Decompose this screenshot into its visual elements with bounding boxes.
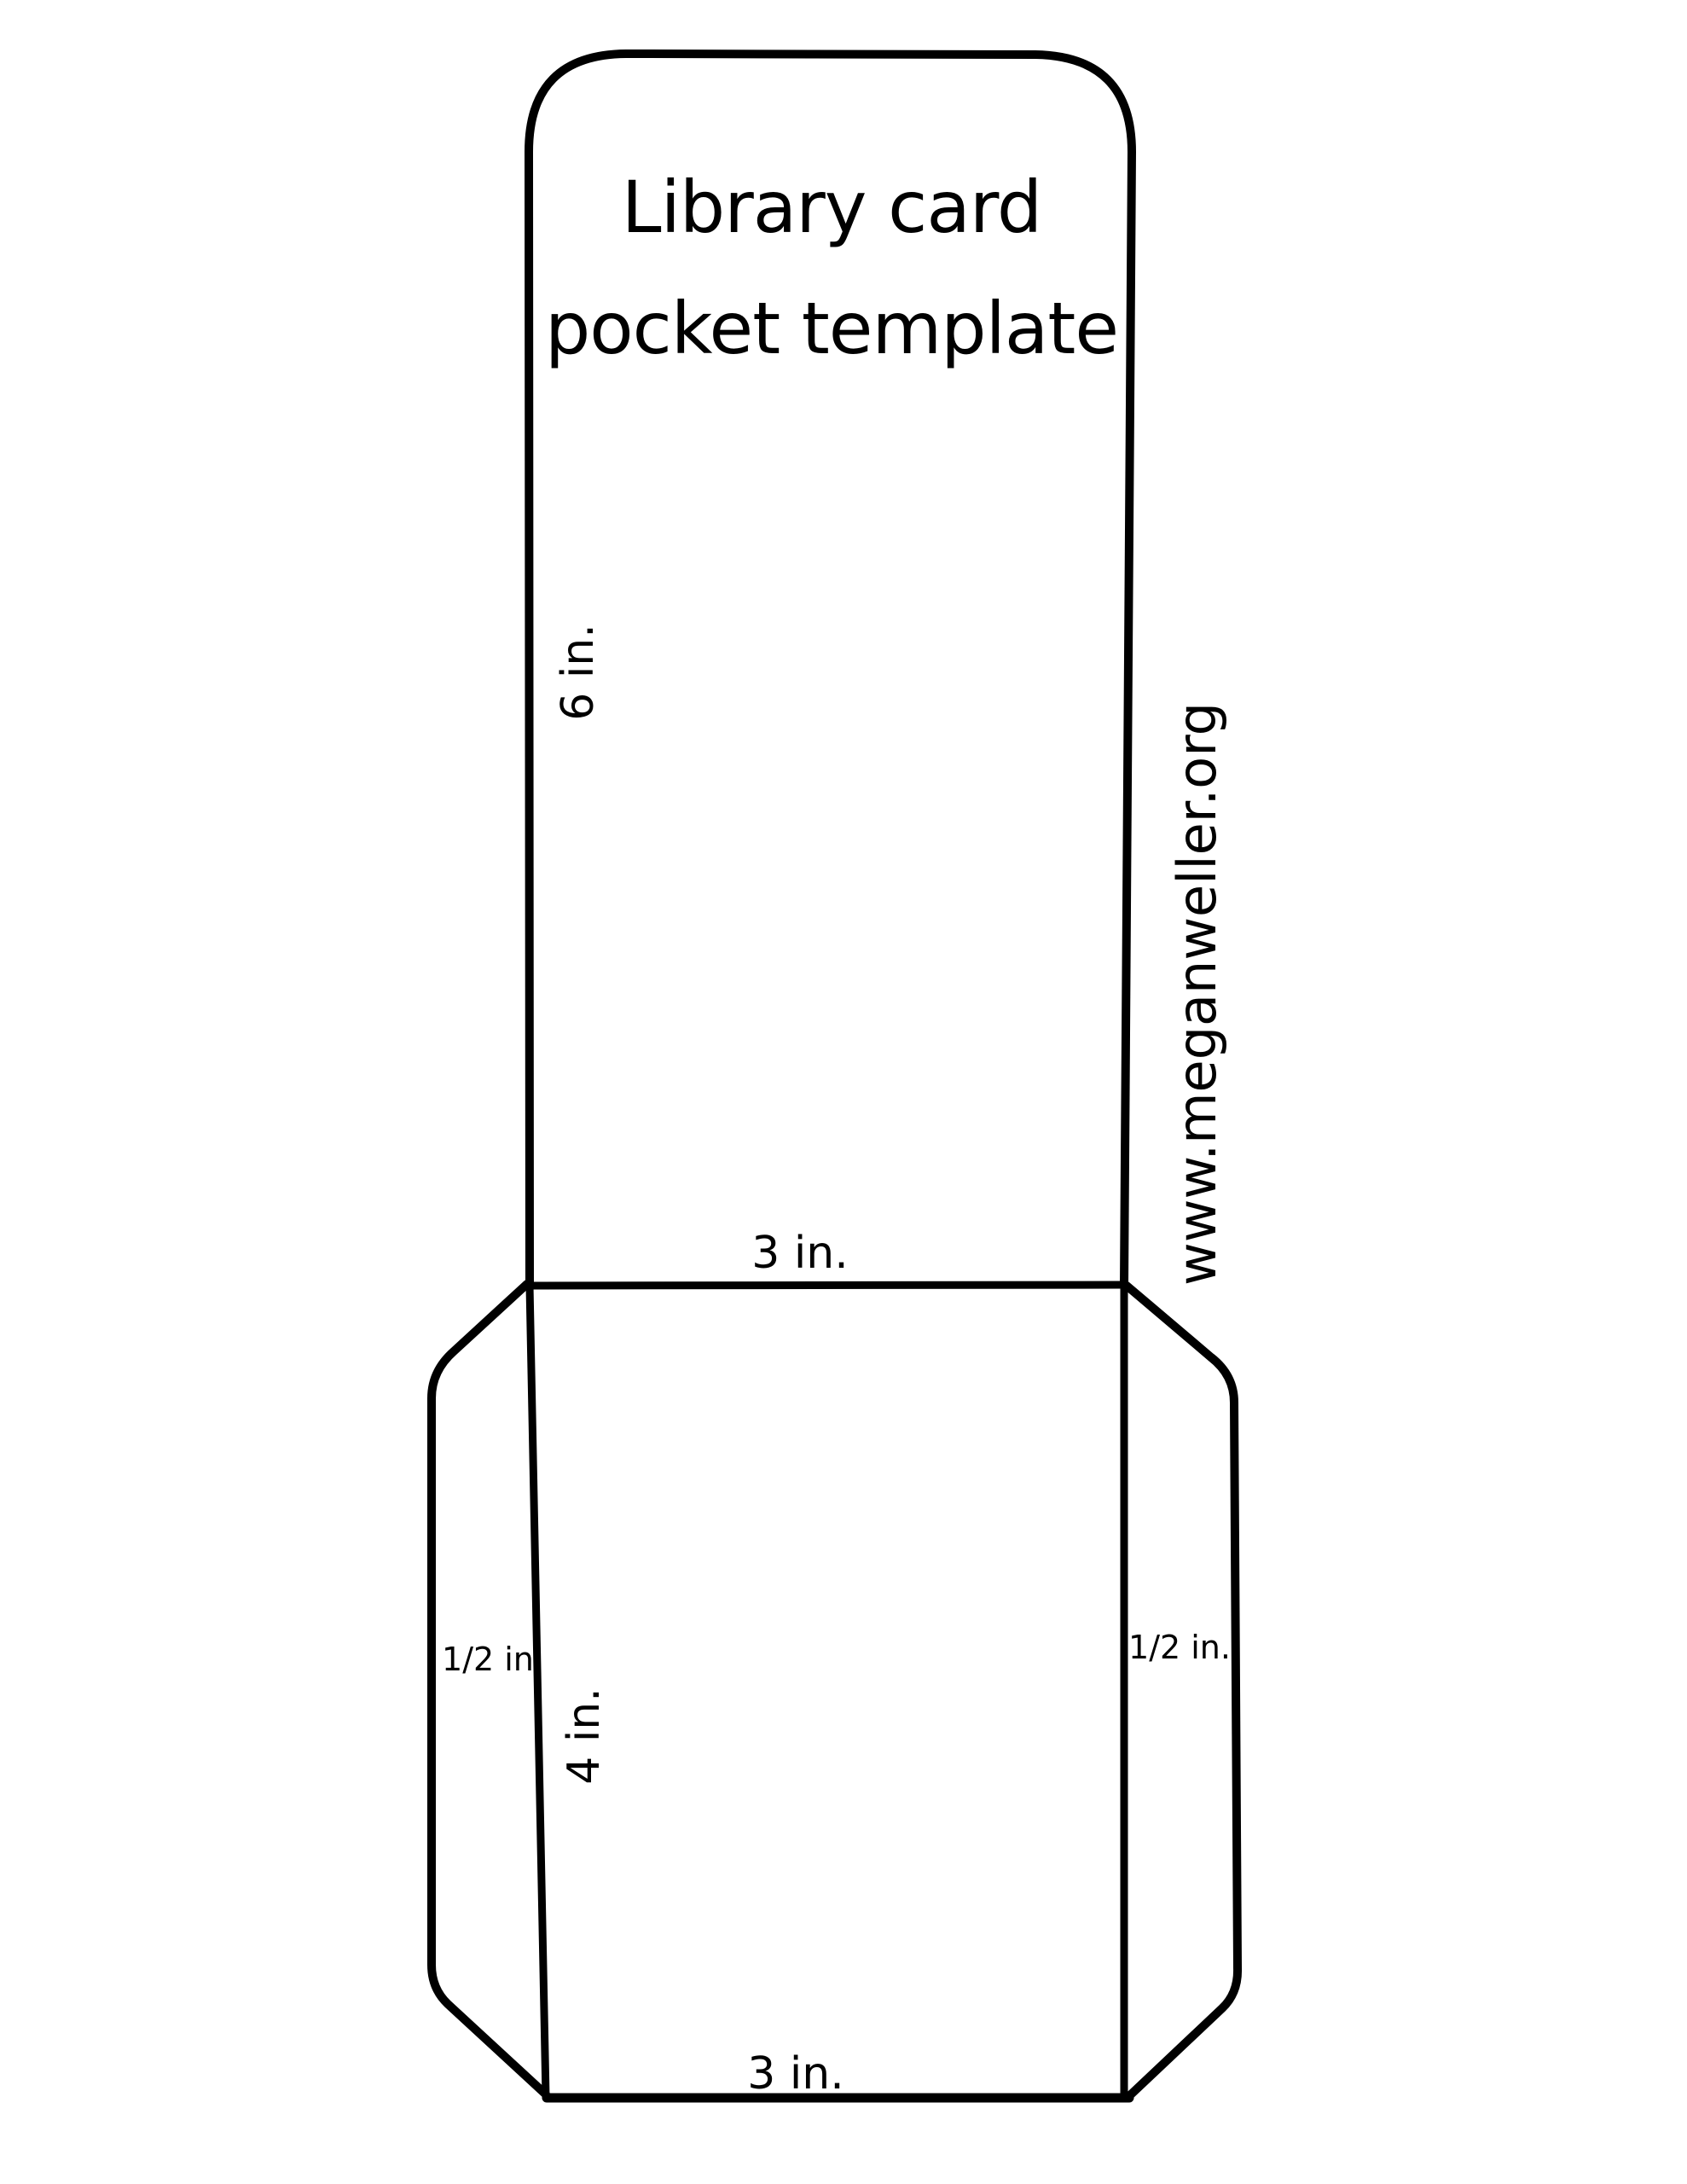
- title-line-2: pocket template: [545, 287, 1118, 370]
- template-page: Library card pocket template 6 in. www.m…: [0, 0, 1687, 2184]
- junction-fold-line: [530, 1285, 1126, 1286]
- website-label: www.meganweller.org: [1166, 702, 1228, 1286]
- template-drawing: Library card pocket template 6 in. www.m…: [0, 0, 1687, 2184]
- title-line-1: Library card: [622, 166, 1041, 249]
- card-height-label: 6 in.: [553, 624, 604, 721]
- card-width-label: 3 in.: [751, 1228, 849, 1279]
- left-flap-label: 1/2 in.: [442, 1641, 544, 1678]
- pocket-width-label: 3 in.: [747, 2048, 844, 2100]
- right-flap-label: 1/2 in.: [1128, 1629, 1231, 1666]
- left-fold-line: [530, 1286, 546, 2097]
- pocket-height-label: 4 in.: [559, 1687, 610, 1785]
- right-flap-outline: [1127, 1286, 1238, 2094]
